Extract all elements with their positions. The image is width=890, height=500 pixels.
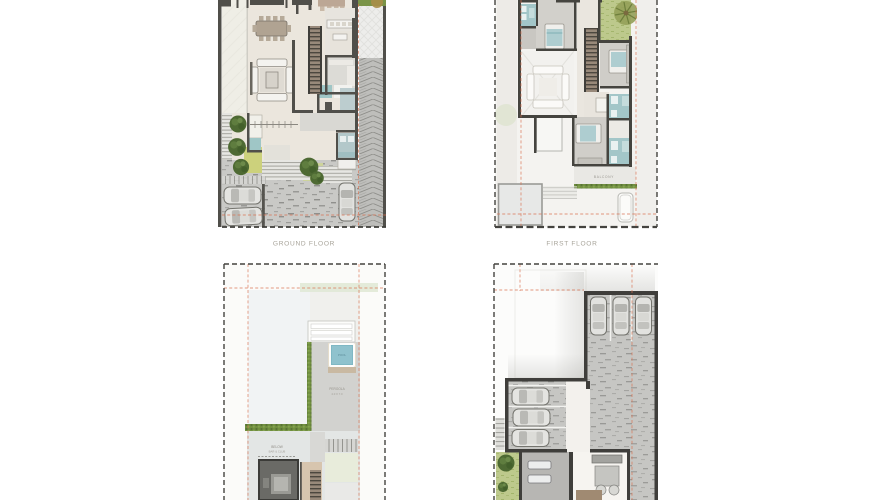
svg-text:POOL: POOL bbox=[338, 353, 347, 357]
svg-text:BAR & CLUB: BAR & CLUB bbox=[269, 450, 286, 454]
svg-text:GROUND FLOOR: GROUND FLOOR bbox=[273, 241, 335, 248]
svg-text:PERGOLA: PERGOLA bbox=[329, 387, 345, 391]
svg-text:BALCONY: BALCONY bbox=[594, 175, 614, 179]
svg-text:BELOW: BELOW bbox=[271, 445, 283, 449]
svg-text:4.0 X 7.0: 4.0 X 7.0 bbox=[331, 392, 343, 396]
svg-text:FIRST FLOOR: FIRST FLOOR bbox=[546, 241, 597, 248]
